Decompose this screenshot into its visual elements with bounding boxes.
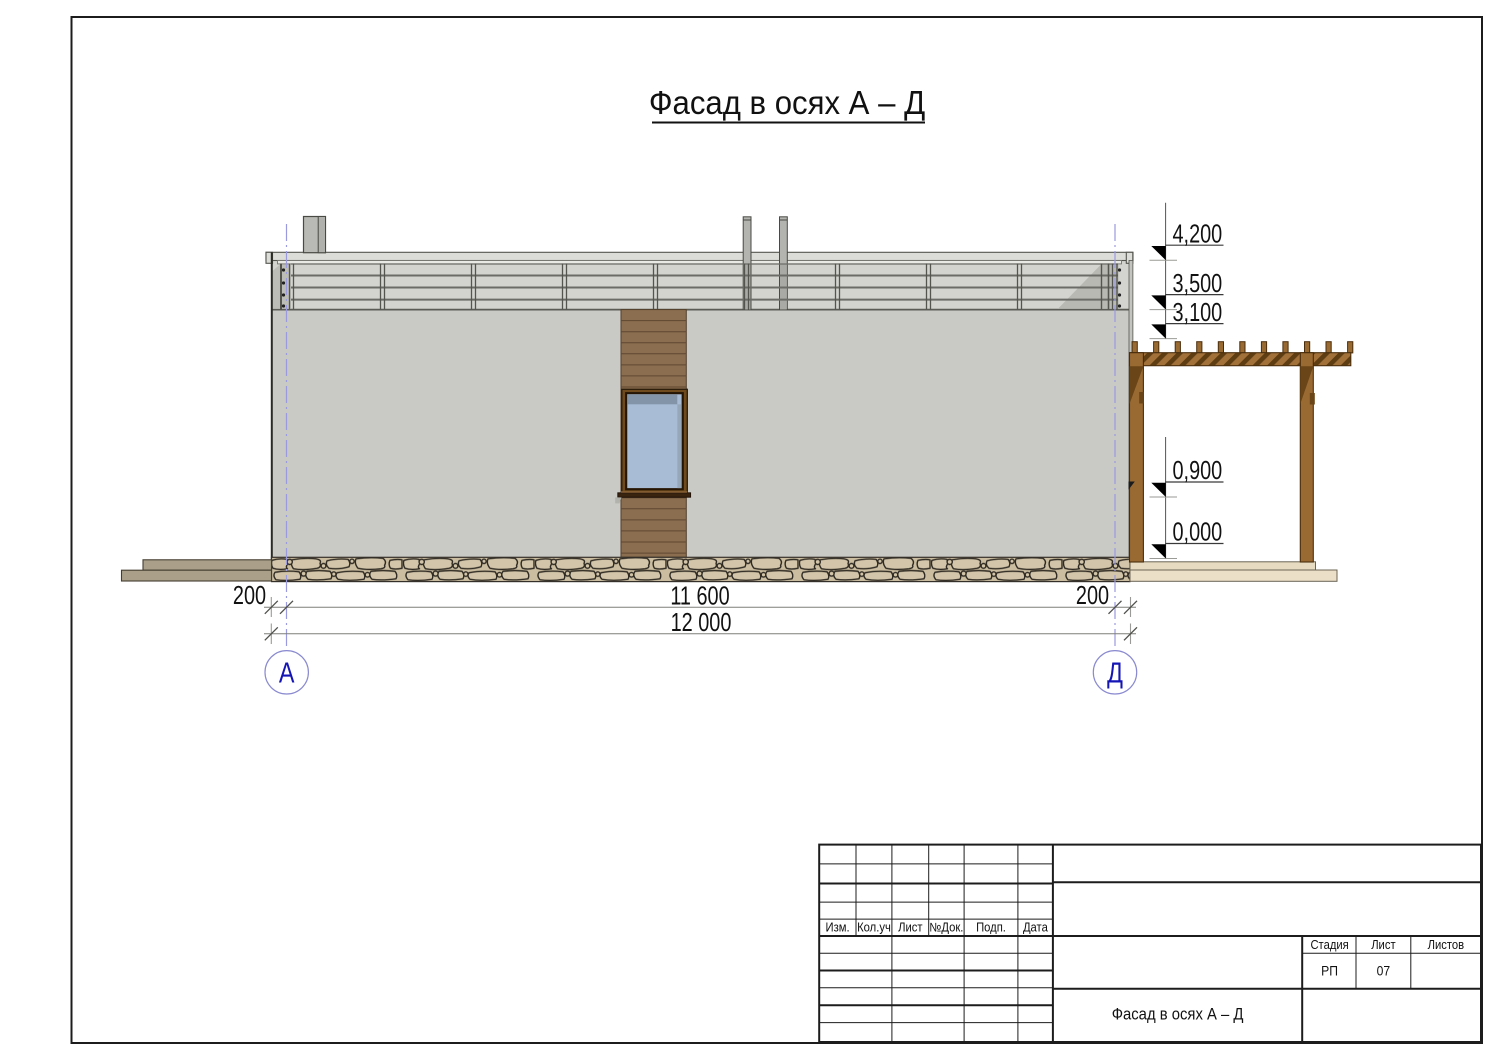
svg-text:Фасад в осях А – Д: Фасад в осях А – Д xyxy=(1112,1006,1244,1024)
svg-text:Лист: Лист xyxy=(1371,937,1396,952)
svg-text:Фасад в осях А – Д: Фасад в осях А – Д xyxy=(649,84,925,121)
svg-text:0,900: 0,900 xyxy=(1172,456,1222,485)
svg-text:07: 07 xyxy=(1377,963,1391,979)
svg-text:200: 200 xyxy=(233,580,266,609)
svg-text:12 000: 12 000 xyxy=(671,607,732,636)
svg-text:Лист: Лист xyxy=(898,920,923,935)
svg-text:0,000: 0,000 xyxy=(1172,517,1222,546)
svg-text:200: 200 xyxy=(1076,580,1109,609)
svg-text:№Док.: №Док. xyxy=(929,920,963,935)
svg-text:А: А xyxy=(279,656,295,689)
svg-text:РП: РП xyxy=(1321,963,1338,979)
svg-text:Стадия: Стадия xyxy=(1310,937,1348,952)
svg-text:11 600: 11 600 xyxy=(670,581,729,610)
svg-text:Изм.: Изм. xyxy=(826,920,850,935)
svg-text:3,500: 3,500 xyxy=(1172,268,1222,297)
svg-text:Подп.: Подп. xyxy=(976,920,1006,935)
svg-text:Листов: Листов xyxy=(1428,937,1465,952)
svg-text:4,200: 4,200 xyxy=(1172,219,1222,248)
svg-text:Д: Д xyxy=(1107,656,1123,689)
svg-text:3,100: 3,100 xyxy=(1172,297,1222,326)
svg-text:Кол.уч: Кол.уч xyxy=(857,920,891,935)
svg-text:Дата: Дата xyxy=(1023,920,1048,935)
